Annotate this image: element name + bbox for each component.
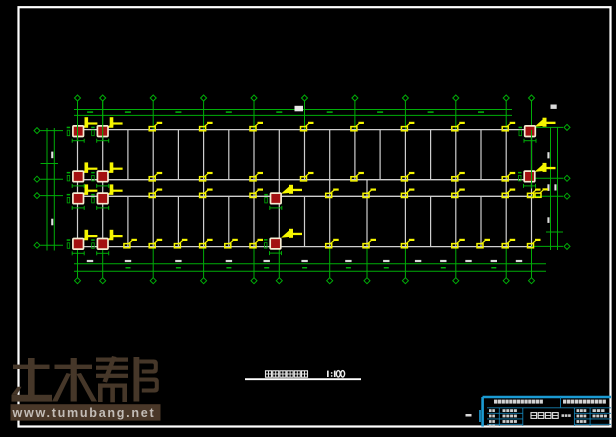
svg-text:www.tumubang.net: www.tumubang.net — [12, 406, 156, 420]
